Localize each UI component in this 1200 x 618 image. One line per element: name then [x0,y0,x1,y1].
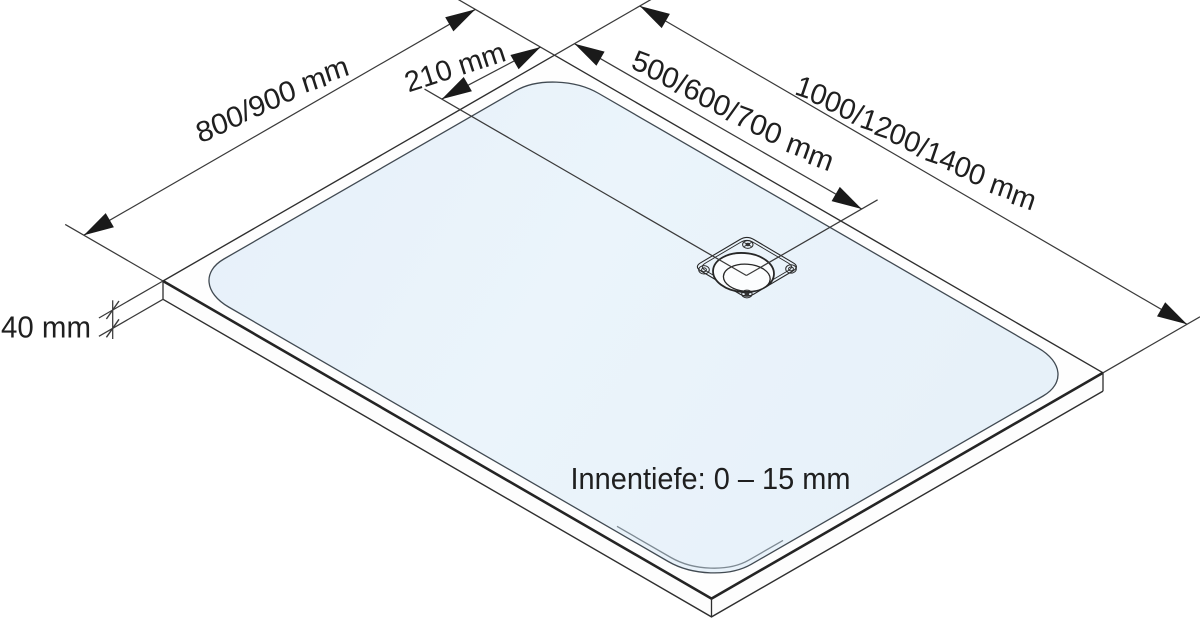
svg-text:40 mm: 40 mm [1,310,91,345]
svg-text:Innentiefe: 0 – 15 mm: Innentiefe: 0 – 15 mm [571,461,851,496]
